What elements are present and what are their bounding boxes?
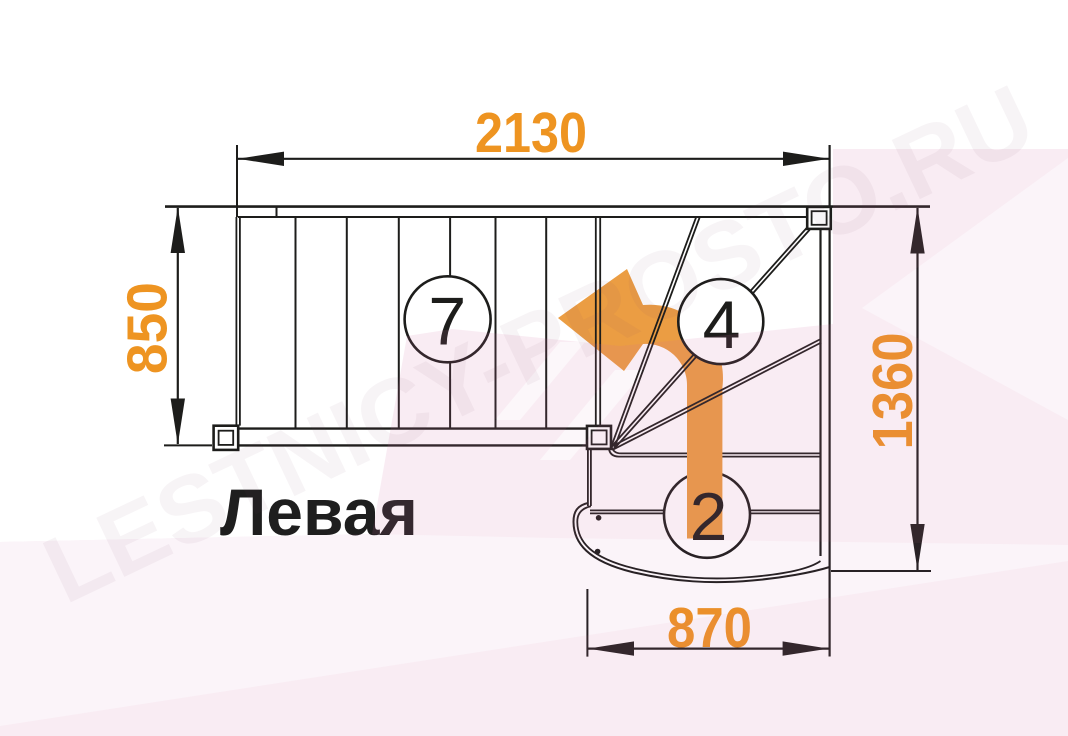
svg-text:850: 850 (116, 282, 180, 374)
svg-text:2130: 2130 (475, 101, 587, 165)
